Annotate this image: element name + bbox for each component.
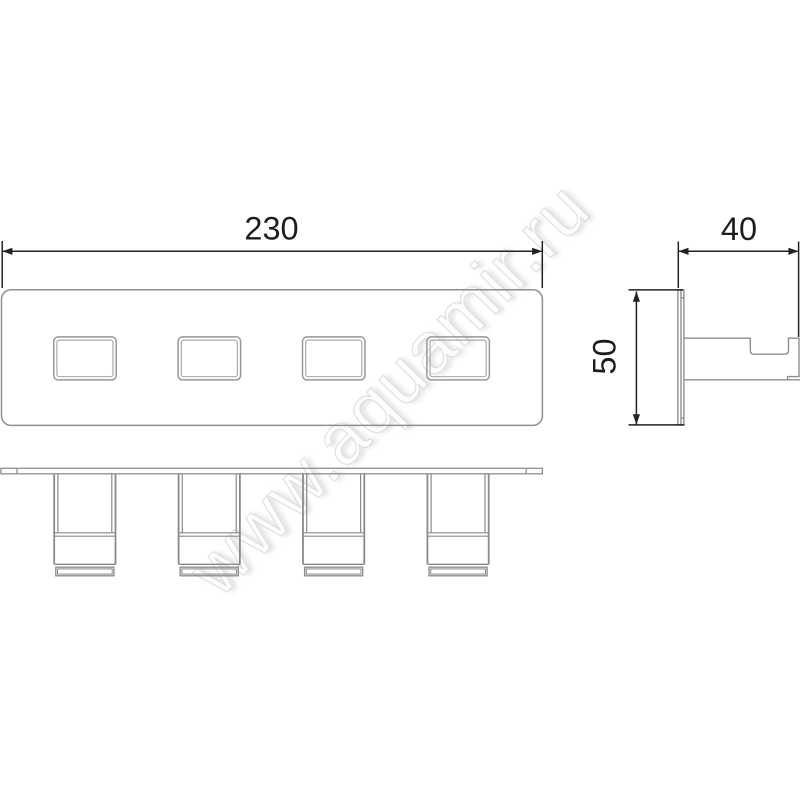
svg-text:50: 50 <box>587 338 623 374</box>
svg-text:40: 40 <box>721 211 757 247</box>
svg-text:230: 230 <box>244 211 298 247</box>
svg-text:www.aquamir.ru: www.aquamir.ru <box>173 167 606 611</box>
